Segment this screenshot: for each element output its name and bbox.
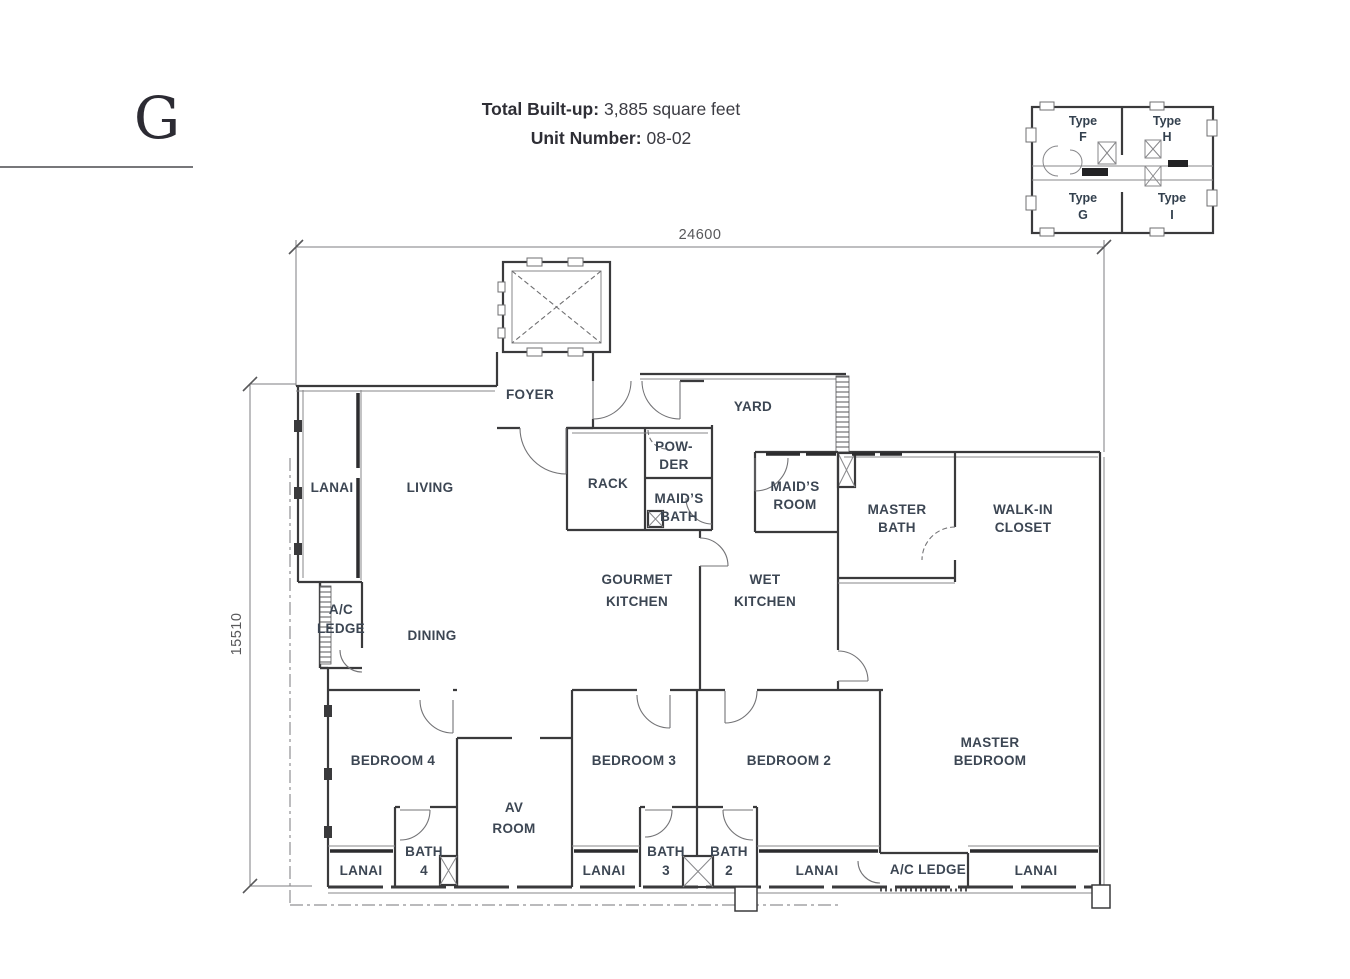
room-label-bath3-2: 3 (662, 863, 670, 878)
key-plan-type-i-1: Type (1158, 191, 1186, 205)
room-label-lanai-left: LANAI (311, 480, 354, 495)
room-label-living: LIVING (407, 480, 454, 495)
key-plan-type-i-2: I (1170, 208, 1173, 222)
room-label-gourmet-kitchen-1: GOURMET (601, 572, 673, 587)
room-label-dining: DINING (407, 628, 456, 643)
room-label-wet-kitchen-2: KITCHEN (734, 594, 796, 609)
room-labels: FOYER YARD POW- DER RACK MAID’S BATH MAI… (311, 387, 1058, 878)
room-label-bedroom2: BEDROOM 2 (747, 753, 831, 768)
room-label-ac-ledge-bottom: A/C LEDGE (890, 862, 966, 877)
floor-plan-canvas: 24600 15510 (0, 0, 1350, 979)
room-label-bedroom4: BEDROOM 4 (351, 753, 436, 768)
column (1092, 885, 1110, 908)
service-shafts (440, 511, 713, 887)
width-dimension: 24600 (679, 227, 722, 243)
room-label-lanai-bed3: LANAI (583, 863, 626, 878)
room-label-maids-bath-1: MAID’S (654, 491, 703, 506)
room-label-lanai-bed2: LANAI (796, 863, 839, 878)
floor-plan-page: G Total Built-up:3,885 square feet Unit … (0, 0, 1350, 979)
room-label-gourmet-kitchen-2: KITCHEN (606, 594, 668, 609)
room-label-foyer: FOYER (506, 387, 554, 402)
room-label-powder-1: POW- (655, 439, 693, 454)
room-label-bedroom3: BEDROOM 3 (592, 753, 677, 768)
lift-cross-icon (512, 271, 601, 343)
room-label-walk-in-closet-2: CLOSET (995, 520, 1052, 535)
key-plan: Type F Type H Type G Type I (1026, 102, 1217, 236)
key-plan-type-h-1: Type (1153, 114, 1181, 128)
key-plan-type-f-1: Type (1069, 114, 1097, 128)
room-label-master-bath-2: BATH (878, 520, 916, 535)
lift-shaft (498, 258, 610, 356)
room-label-powder-2: DER (659, 457, 688, 472)
room-label-yard: YARD (734, 399, 772, 414)
room-label-bath4-1: BATH (405, 844, 443, 859)
room-label-bath2-1: BATH (710, 844, 748, 859)
key-plan-type-g-1: Type (1069, 191, 1097, 205)
room-label-master-bath-1: MASTER (868, 502, 927, 517)
room-label-master-bedroom-1: MASTER (961, 735, 1020, 750)
height-dimension: 15510 (229, 613, 245, 656)
room-label-bath3-1: BATH (647, 844, 685, 859)
room-label-walk-in-closet-1: WALK-IN (993, 502, 1053, 517)
room-label-maids-room-2: ROOM (773, 497, 816, 512)
column (735, 887, 757, 911)
key-plan-lift-icon (1098, 140, 1161, 186)
key-plan-type-g-2: G (1078, 208, 1088, 222)
room-label-master-bedroom-2: BEDROOM (954, 753, 1027, 768)
duct-shaft-icon (838, 453, 855, 487)
key-plan-type-f-2: F (1079, 130, 1087, 144)
room-label-lanai-master: LANAI (1015, 863, 1058, 878)
room-label-rack: RACK (588, 476, 628, 491)
room-label-maids-room-1: MAID’S (770, 479, 819, 494)
room-label-maids-bath-2: BATH (660, 509, 698, 524)
yard-vent-hatch (836, 376, 849, 452)
room-label-bath4-2: 4 (420, 863, 428, 878)
key-plan-type-h-2: H (1162, 130, 1171, 144)
room-label-ac-ledge-left-2: LEDGE (317, 621, 365, 636)
room-label-bath2-2: 2 (725, 863, 733, 878)
room-label-av-room-2: ROOM (492, 821, 535, 836)
room-label-lanai-bed4: LANAI (340, 863, 383, 878)
room-label-av-room-1: AV (505, 800, 523, 815)
room-label-wet-kitchen-1: WET (750, 572, 781, 587)
room-label-ac-ledge-left-1: A/C (329, 602, 353, 617)
